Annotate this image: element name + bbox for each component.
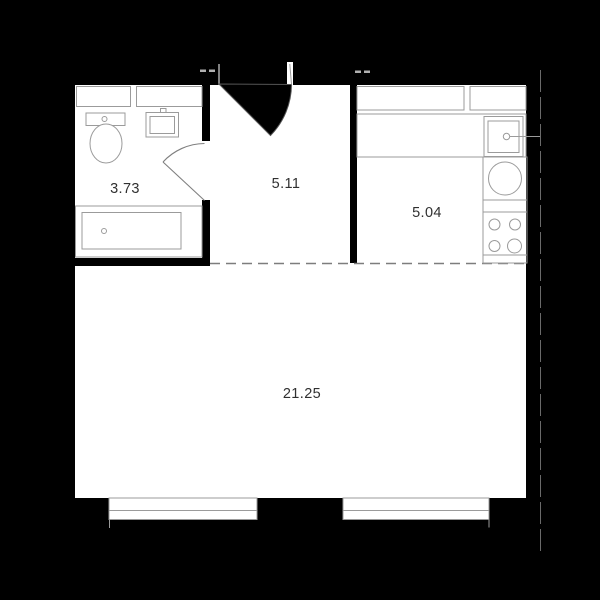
bathroom-wall-upper [202, 85, 210, 141]
apartment-floor [75, 85, 526, 498]
floorplan: 3.73 5.11 5.04 21.25 [0, 0, 600, 600]
kitchen-partition-wall [350, 85, 357, 263]
floorplan-drawing: 3.73 5.11 5.04 21.25 [0, 0, 600, 600]
bathroom-area-label: 3.73 [110, 181, 140, 197]
kitchen-area-label: 5.04 [412, 205, 442, 221]
hallway-area-label: 5.11 [272, 176, 301, 192]
living-room-area-label: 21.25 [283, 386, 321, 402]
bathroom-wall-lower [202, 200, 210, 266]
washbasin-icon [146, 109, 179, 138]
bathroom-wall-bottom [60, 258, 210, 266]
entrance-door-jamb [219, 64, 220, 85]
